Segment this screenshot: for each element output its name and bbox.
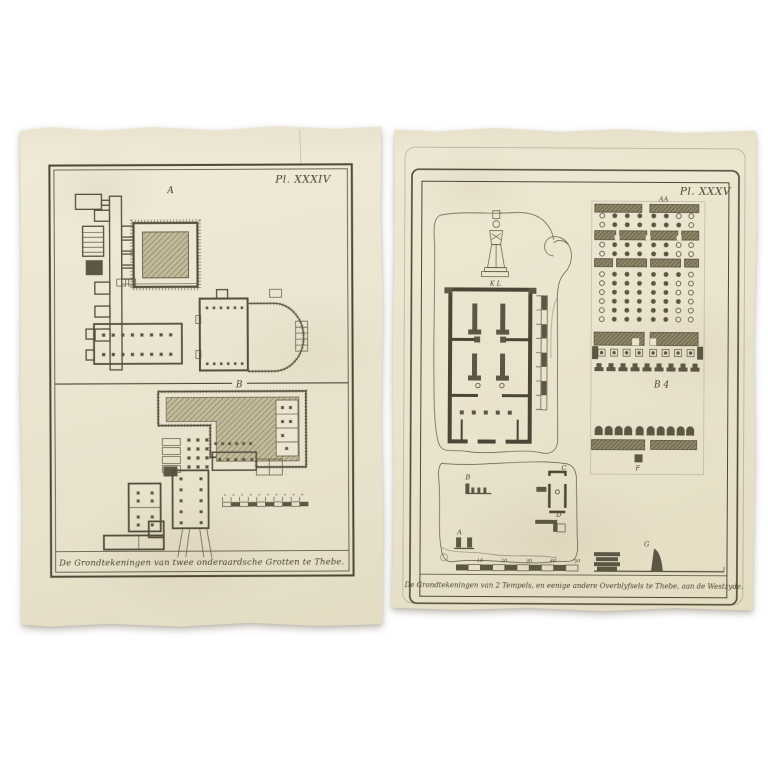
label-b4: B 4: [653, 380, 670, 390]
fragment-a-label: A: [456, 528, 462, 536]
central-hall-dots: [206, 306, 244, 365]
plate-number: Pl. XXXIV: [274, 173, 332, 185]
hypostyle-column-grid: [599, 213, 693, 322]
scale-number: 20: [500, 558, 508, 564]
fragment-b-label: B: [464, 473, 470, 481]
pedestal-row: [594, 363, 699, 372]
plan-a-grotto-drawing: [75, 193, 307, 372]
left-print-paper: Pl. XXXIV A B: [19, 125, 384, 628]
left-print: Pl. XXXIV A B: [19, 125, 384, 628]
fragment-c-label: C: [561, 464, 566, 472]
plan-b-scale-bar: [222, 494, 308, 507]
ruin-g-drawing: [594, 548, 724, 572]
right-print: Pl. XXXV AA: [391, 127, 758, 613]
right-plate-engraving: Pl. XXXV AA: [391, 127, 758, 613]
fragment-c-drawing: [536, 472, 565, 512]
fragment-a-drawing: [454, 537, 474, 548]
plan-aa-label: AA: [658, 195, 669, 203]
section-b-label: B: [235, 380, 243, 390]
section-a-label: A: [166, 186, 174, 196]
vertical-scale-bar: [536, 296, 548, 410]
fragment-b-drawing: [465, 483, 491, 493]
temple-plan-kl: [444, 287, 537, 443]
plate-number: Pl. XXXV: [679, 186, 732, 198]
right-caption: De Grondtekeningen van 2 Tempels, en een…: [404, 581, 744, 591]
arched-base-row: [595, 426, 695, 436]
hypostyle-plan-aa: [590, 201, 704, 475]
statue-label: K L: [489, 280, 501, 288]
left-caption: De Grondtekeningen van twee onderaardsch…: [58, 557, 344, 568]
right-print-paper: Pl. XXXV AA: [391, 127, 758, 613]
scale-number: 10: [477, 558, 484, 564]
photo-of-two-antique-prints: Pl. XXXIV A B: [0, 0, 768, 768]
left-plate-engraving: Pl. XXXIV A B: [19, 125, 384, 628]
hall-pillar-dots: [102, 333, 172, 356]
label-f: F: [634, 464, 640, 472]
statue-figure: [481, 211, 508, 277]
pillar-grid: [187, 438, 208, 468]
scale-number: 30: [526, 558, 533, 564]
plan-b-grotto-drawing: [103, 391, 308, 558]
bottom-scale-bar: [456, 564, 578, 571]
scale-number: 40: [549, 558, 557, 564]
scale-number: 50: [574, 559, 581, 565]
fragment-d-label: D: [555, 511, 562, 519]
column-base-row: [592, 346, 703, 360]
stem-hall-dots: [179, 477, 202, 524]
label-g: G: [644, 540, 649, 548]
fragment-d-drawing: [535, 520, 565, 532]
